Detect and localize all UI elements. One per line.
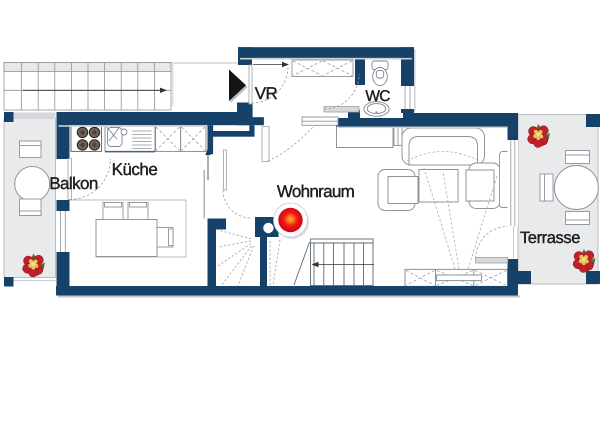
svg-text:Terrasse: Terrasse [520, 229, 580, 247]
svg-text:Küche: Küche [112, 160, 158, 179]
svg-text:WC: WC [365, 88, 390, 105]
svg-text:Balkon: Balkon [49, 174, 98, 193]
svg-text:Wohnraum: Wohnraum [277, 182, 355, 201]
svg-text:VR: VR [255, 84, 278, 103]
